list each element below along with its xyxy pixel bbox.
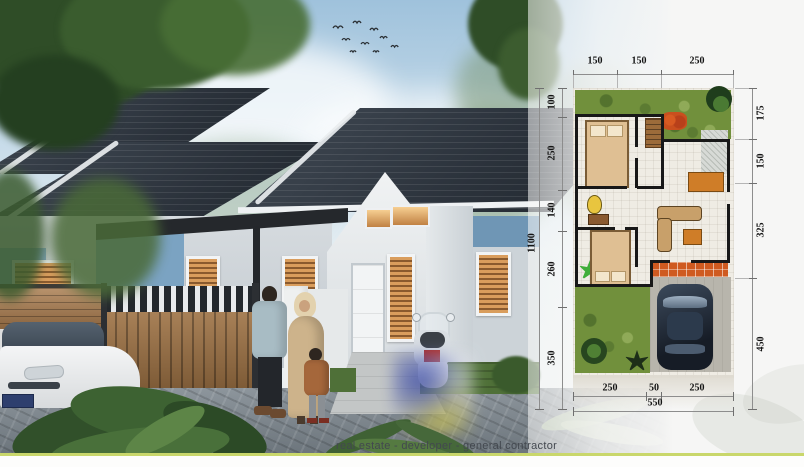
dim-label-bottom-total: 550 xyxy=(648,398,663,409)
dim-tick xyxy=(748,139,757,140)
mid-tree xyxy=(50,178,160,298)
window-blinds xyxy=(476,252,511,316)
scooter-mirror xyxy=(412,313,421,322)
man-pants xyxy=(258,357,282,407)
scooter-seat xyxy=(420,332,445,348)
dim-tick xyxy=(558,117,567,118)
wall xyxy=(635,227,638,267)
man-head xyxy=(262,286,277,302)
dimension-line xyxy=(562,88,563,409)
wall xyxy=(650,260,670,263)
child-shoe xyxy=(307,418,317,423)
car-rear-window xyxy=(665,344,705,354)
dim-label-bottom: 250 xyxy=(690,383,705,394)
floor-plan xyxy=(573,88,734,410)
dim-tick xyxy=(535,409,544,410)
dim-label-left: 250 xyxy=(547,146,558,161)
transom-window xyxy=(365,208,392,229)
dim-extension xyxy=(661,75,662,88)
terrace-tiles xyxy=(650,262,728,277)
dim-extension xyxy=(735,139,749,140)
dim-extension xyxy=(735,88,749,89)
wall xyxy=(661,114,664,142)
dim-tick xyxy=(748,278,757,279)
man-jacket xyxy=(252,301,287,359)
dim-extension xyxy=(573,75,574,88)
dim-tick xyxy=(748,88,757,89)
red-shrub-icon xyxy=(661,112,687,130)
palm-tree-icon xyxy=(713,96,729,112)
tagline: real estate - developer - general contra… xyxy=(336,440,557,452)
dim-extension xyxy=(733,75,734,88)
dimension-line xyxy=(539,88,540,409)
dim-tick xyxy=(573,392,574,401)
dim-label-left-total: 1100 xyxy=(527,233,538,252)
kitchen-counter-icon xyxy=(688,172,724,192)
dim-extension xyxy=(735,278,749,279)
shelf-icon xyxy=(645,118,662,148)
front-door xyxy=(351,263,385,362)
bed-icon xyxy=(590,230,631,287)
dim-label-bottom: 250 xyxy=(603,383,618,394)
sofa-icon xyxy=(657,218,672,252)
dim-label-right: 325 xyxy=(756,223,767,238)
dim-label-top: 250 xyxy=(690,56,705,67)
wall xyxy=(650,260,653,287)
wall xyxy=(727,139,730,192)
coffee-table-icon xyxy=(683,229,702,245)
dim-label-right: 175 xyxy=(756,106,767,121)
wall xyxy=(635,158,638,188)
car-windshield-top xyxy=(663,296,707,308)
car-headlight xyxy=(24,365,65,381)
dim-tick xyxy=(573,407,574,416)
wall xyxy=(575,114,663,117)
footer-strip xyxy=(0,456,804,467)
dim-tick xyxy=(558,88,567,89)
dim-label-left: 100 xyxy=(547,95,558,110)
child-shoe xyxy=(319,418,329,423)
bed-icon xyxy=(585,120,629,188)
dim-tick xyxy=(558,307,567,308)
child xyxy=(300,348,334,428)
license-plate xyxy=(2,394,34,408)
door-side-window xyxy=(387,254,415,342)
bathroom-area xyxy=(701,130,728,174)
flyer: 150 150 250 100 250 140 260 350 1100 175… xyxy=(0,0,804,467)
car-grille xyxy=(8,382,60,389)
wall xyxy=(635,117,638,147)
toilet-icon xyxy=(587,195,602,214)
dim-label-left: 260 xyxy=(547,262,558,277)
dim-tick xyxy=(535,88,544,89)
transom-window xyxy=(391,205,430,227)
dim-tick xyxy=(748,409,757,410)
dim-label-right: 450 xyxy=(756,337,767,352)
birds-icon xyxy=(328,18,418,60)
child-leg xyxy=(318,395,325,419)
dim-label-right: 150 xyxy=(756,154,767,169)
dim-label-left: 140 xyxy=(547,203,558,218)
dim-tick xyxy=(558,409,567,410)
wall xyxy=(575,227,615,230)
dim-extension xyxy=(617,75,618,88)
wall xyxy=(661,142,664,188)
bench-icon xyxy=(588,214,609,225)
wall xyxy=(575,186,627,189)
wall xyxy=(727,204,730,262)
child-coat xyxy=(304,360,329,396)
dim-tick xyxy=(558,231,567,232)
dimension-line xyxy=(573,74,734,75)
dimension-line xyxy=(752,88,753,410)
dim-label-top: 150 xyxy=(632,56,647,67)
dim-label-top: 150 xyxy=(588,56,603,67)
car-top-icon xyxy=(657,284,713,370)
wall xyxy=(661,139,730,142)
child-leg xyxy=(309,395,316,419)
wall xyxy=(575,284,650,287)
car-roof-top xyxy=(667,312,703,340)
dim-tick xyxy=(748,183,757,184)
dim-tick xyxy=(733,407,734,416)
dim-tick xyxy=(558,190,567,191)
dim-tick xyxy=(733,392,734,401)
wall xyxy=(575,114,578,286)
dim-extension xyxy=(735,183,749,184)
dim-label-bottom: 50 xyxy=(649,383,659,394)
woman-face xyxy=(299,300,310,312)
scooter-mirror xyxy=(446,313,455,322)
dimension-line xyxy=(573,411,734,412)
tree-icon xyxy=(587,344,601,358)
dim-label-left: 350 xyxy=(547,351,558,366)
wall xyxy=(691,260,730,263)
wall xyxy=(637,186,664,189)
